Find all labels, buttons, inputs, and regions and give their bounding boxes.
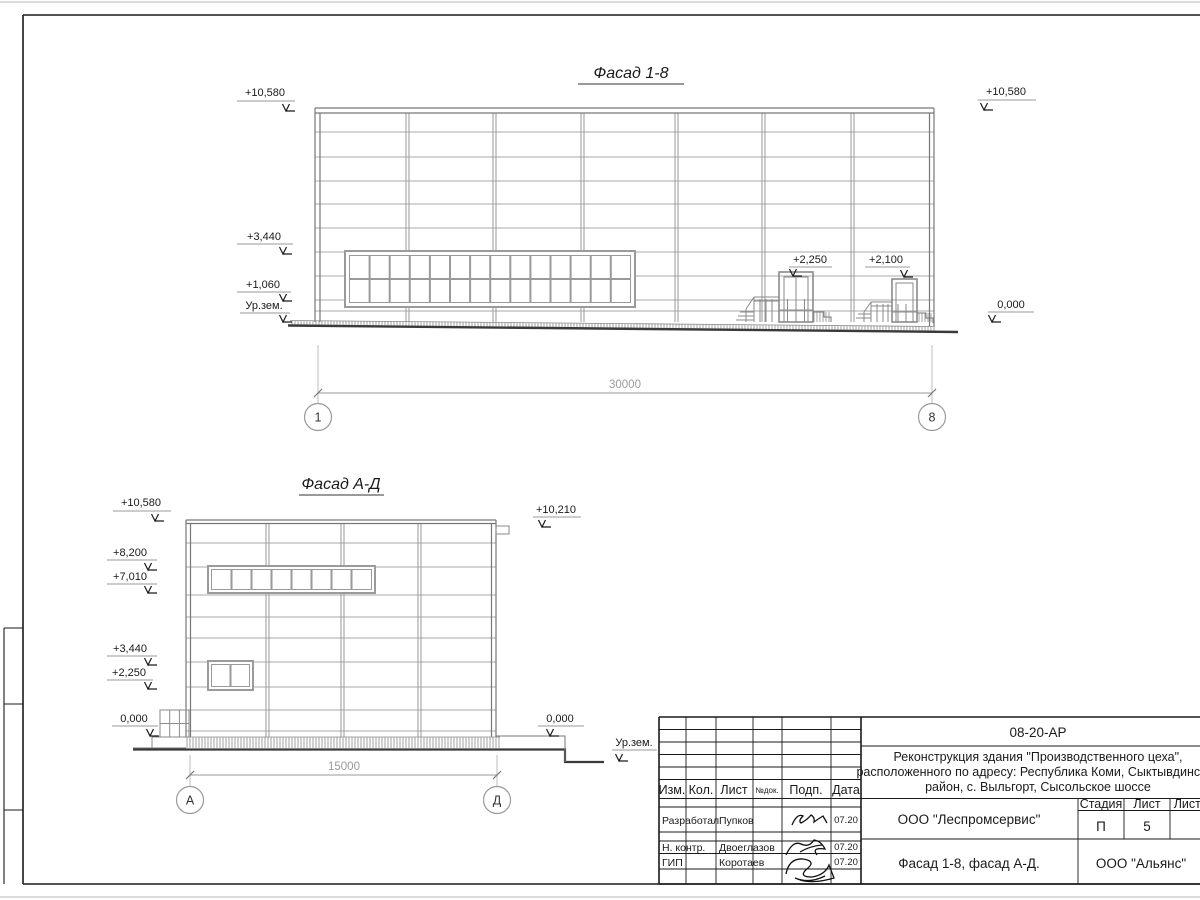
marks-right-1-8: +10,580 0,000 — [978, 86, 1036, 322]
svg-text:+10,580: +10,580 — [121, 497, 161, 509]
marks-right-a-d: +10,210 0,000 Ур.зем. — [533, 504, 657, 761]
doc-number: 08-20-АР — [1009, 725, 1066, 740]
drawing-sheet: Фасад 1-8 — [0, 0, 1200, 900]
dimension-a-d-value: 15000 — [328, 761, 360, 773]
project-line3: район, с. Выльгорт, Сысольское шоссе — [925, 780, 1151, 794]
svg-text:+10,210: +10,210 — [536, 504, 576, 516]
row-date-developer: 07.20 — [834, 815, 858, 826]
facade-a-d: Фасад А-Д — [107, 476, 657, 814]
signature-gip — [786, 859, 834, 882]
facade-1-8-title: Фасад 1-8 — [594, 65, 669, 82]
svg-text:+3,440: +3,440 — [113, 643, 147, 655]
svg-text:0,000: 0,000 — [546, 713, 574, 725]
signature-developer — [792, 815, 827, 825]
row-role-gip: ГИП — [662, 857, 683, 869]
svg-text:+2,250: +2,250 — [112, 667, 146, 679]
svg-text:Д: Д — [493, 794, 502, 808]
small-window-a-d — [208, 661, 253, 690]
sheet-drawing: Фасад 1-8 — [0, 0, 1200, 900]
dimension-1-8: 30000 1 8 — [305, 345, 946, 431]
row-name-gip: Коротаев — [719, 857, 765, 869]
svg-text:Ур.зем.: Ур.зем. — [615, 737, 652, 749]
project-line2: расположенного по адресу: Республика Ком… — [856, 765, 1200, 779]
title-block: Изм. Кол. Лист №док. Подп. Дата Разработ… — [659, 717, 1200, 884]
col-kol: Кол. — [689, 783, 714, 797]
svg-text:1: 1 — [315, 411, 322, 425]
row-date-ncontrol: 07.20 — [834, 842, 858, 853]
sheets-label: Листов — [1174, 797, 1200, 811]
base-lattice — [152, 710, 189, 748]
dimension-1-8-value: 30000 — [609, 379, 641, 391]
facade-a-d-title: Фасад А-Д — [301, 476, 380, 493]
window-band-1-8 — [345, 251, 635, 307]
row-name-developer: Пупков — [719, 815, 754, 827]
signature-ncontrol — [786, 840, 825, 855]
svg-text:А: А — [186, 794, 195, 808]
sheet-label: Лист — [1133, 797, 1160, 811]
entrance-right — [856, 279, 933, 323]
org-designer: ООО "Леспромсервис" — [898, 812, 1041, 827]
stage-value: П — [1096, 819, 1106, 834]
row-role-ncontrol: Н. контр. — [662, 842, 705, 854]
col-data: Дата — [832, 783, 860, 797]
dimension-a-d: 15000 А Д — [177, 755, 511, 814]
entrance-left — [736, 272, 831, 322]
svg-text:+8,200: +8,200 — [113, 547, 147, 559]
svg-text:+7,010: +7,010 — [113, 571, 147, 583]
stage-label: Стадия — [1080, 797, 1123, 811]
row-date-gip: 07.20 — [834, 857, 858, 868]
svg-text:8: 8 — [929, 411, 936, 425]
svg-text:+1,060: +1,060 — [246, 279, 280, 291]
col-ndoc: №док. — [755, 786, 778, 795]
mark-entry-right: +2,100 — [865, 254, 913, 277]
row-name-ncontrol: Двоеглазов — [719, 842, 775, 854]
org-customer: ООО "Альянс" — [1096, 856, 1186, 871]
svg-text:+2,100: +2,100 — [869, 254, 903, 266]
sheet-title: Фасад 1-8, фасад А-Д. — [898, 856, 1040, 871]
col-izm: Изм. — [659, 783, 686, 797]
col-list: Лист — [720, 783, 747, 797]
svg-text:+10,580: +10,580 — [986, 86, 1026, 98]
marks-left-1-8: +10,580 +3,440 +1,060 Ур.зем. — [237, 87, 295, 322]
svg-text:0,000: 0,000 — [120, 713, 148, 725]
facade-1-8: Фасад 1-8 — [237, 65, 1036, 431]
window-band-a-d — [208, 566, 375, 593]
svg-text:0,000: 0,000 — [997, 299, 1025, 311]
project-line1: Реконструкция здания "Производственного … — [894, 750, 1183, 764]
ground-1-8 — [288, 321, 958, 333]
col-podp: Подп. — [789, 783, 822, 797]
sheet-value: 5 — [1143, 819, 1151, 834]
ground-a-d — [133, 736, 604, 762]
marks-left-a-d: +10,580 +8,200 +7,010 +3,440 +2,250 0,00… — [107, 497, 171, 736]
svg-text:Ур.зем.: Ур.зем. — [245, 300, 282, 312]
svg-text:+10,580: +10,580 — [245, 87, 285, 99]
row-role-developer: Разработал — [662, 815, 719, 827]
svg-text:+3,440: +3,440 — [247, 231, 281, 243]
svg-text:+2,250: +2,250 — [793, 254, 827, 266]
